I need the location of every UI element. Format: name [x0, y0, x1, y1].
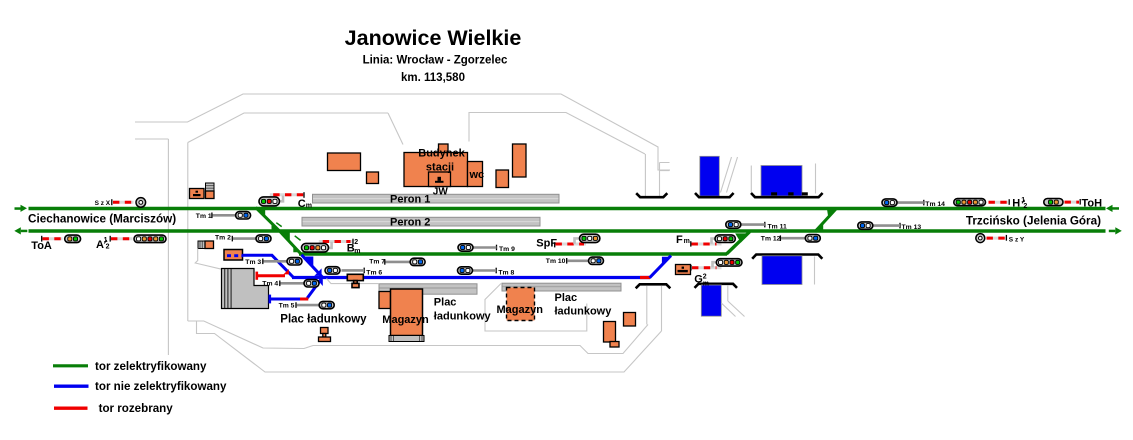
svg-text:S z X: S z X	[95, 200, 111, 207]
svg-text:ładunkowy: ładunkowy	[434, 310, 492, 322]
svg-text:Tm 5: Tm 5	[279, 303, 295, 310]
svg-text:2: 2	[354, 239, 358, 246]
svg-text:Ciechanowice (Marciszów): Ciechanowice (Marciszów)	[28, 213, 176, 226]
svg-text:Plac ładunkowy: Plac ładunkowy	[280, 314, 367, 326]
svg-text:JW: JW	[433, 186, 449, 197]
svg-text:Tm 10: Tm 10	[546, 258, 566, 265]
svg-text:Tm 11: Tm 11	[768, 223, 787, 230]
svg-text:Tm 9: Tm 9	[499, 246, 515, 253]
svg-text:Tm 2: Tm 2	[215, 235, 231, 242]
svg-text:Tm 8: Tm 8	[498, 269, 514, 276]
svg-text:Tm 7: Tm 7	[369, 258, 385, 265]
svg-text:Tm 6: Tm 6	[366, 269, 382, 276]
svg-text:ToA: ToA	[31, 240, 52, 252]
svg-text:Janowice Wielkie: Janowice Wielkie	[345, 26, 522, 50]
svg-text:Tm 3: Tm 3	[245, 259, 261, 266]
svg-text:tor nie zelektryfikowany: tor nie zelektryfikowany	[95, 380, 227, 393]
svg-text:Tm 13: Tm 13	[902, 224, 922, 231]
svg-text:Peron 1: Peron 1	[390, 193, 430, 205]
svg-text:ToH: ToH	[1082, 197, 1103, 209]
svg-text:Tm 4: Tm 4	[262, 281, 278, 288]
svg-text:Tm 14: Tm 14	[925, 201, 945, 208]
svg-text:2: 2	[106, 244, 110, 251]
svg-text:m: m	[306, 203, 312, 210]
svg-text:m: m	[684, 238, 690, 245]
svg-text:F: F	[676, 234, 683, 246]
svg-text:Budynek: Budynek	[418, 148, 465, 160]
svg-text:Plac: Plac	[555, 292, 578, 304]
svg-text:C: C	[298, 198, 306, 210]
svg-text:km. 113,580: km. 113,580	[401, 72, 465, 84]
svg-text:S z Y: S z Y	[1009, 236, 1025, 243]
svg-text:Linia: Wrocław - Zgorzelec: Linia: Wrocław - Zgorzelec	[363, 55, 508, 67]
svg-text:m: m	[703, 281, 709, 288]
svg-text:Peron 2: Peron 2	[390, 216, 430, 228]
svg-text:Plac: Plac	[434, 296, 457, 308]
svg-text:tor rozebrany: tor rozebrany	[99, 402, 174, 415]
svg-text:Magazyn: Magazyn	[497, 304, 544, 316]
svg-text:m: m	[354, 248, 360, 255]
svg-text:stacji: stacji	[426, 162, 454, 174]
svg-text:wc: wc	[469, 169, 485, 181]
svg-text:Tm 1: Tm 1	[196, 213, 212, 220]
svg-text:Tm 12: Tm 12	[761, 236, 781, 243]
svg-text:Trzcińsko (Jelenia Góra): Trzcińsko (Jelenia Góra)	[966, 214, 1101, 227]
svg-text:G: G	[694, 273, 703, 285]
svg-text:Magazyn: Magazyn	[382, 314, 429, 326]
svg-text:tor zelektryfikowany: tor zelektryfikowany	[95, 360, 207, 373]
svg-text:ładunkowy: ładunkowy	[555, 306, 613, 318]
svg-text:H: H	[1012, 197, 1020, 209]
svg-text:2: 2	[1023, 203, 1027, 210]
